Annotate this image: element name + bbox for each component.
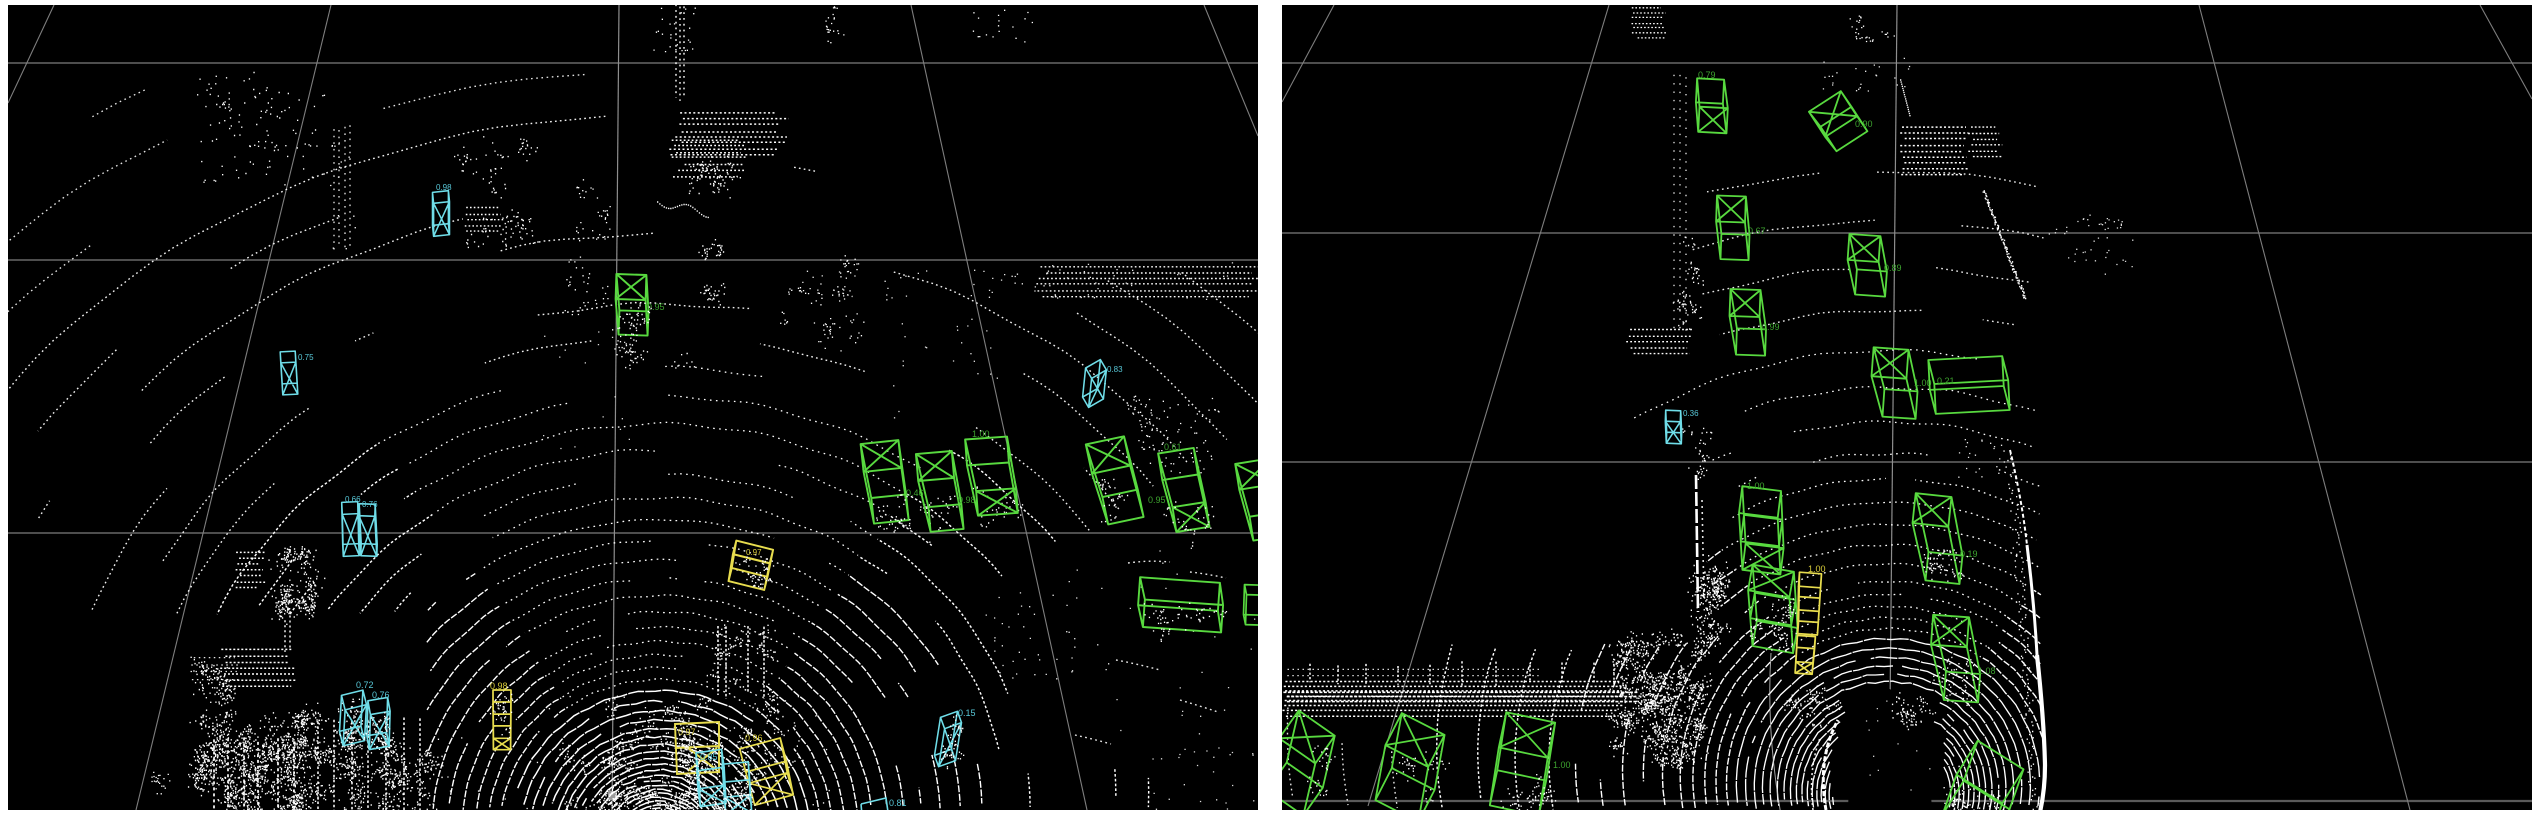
svg-text:1.00: 1.00 bbox=[1747, 481, 1765, 491]
svg-text:0.75: 0.75 bbox=[298, 353, 314, 362]
svg-text:0.79: 0.79 bbox=[1698, 70, 1716, 80]
svg-text:1.00: 1.00 bbox=[972, 429, 990, 439]
svg-text:0.89: 0.89 bbox=[1884, 263, 1902, 273]
svg-text:0.72: 0.72 bbox=[356, 680, 374, 690]
svg-text:0.90: 0.90 bbox=[1855, 119, 1873, 129]
svg-text:0.19: 0.19 bbox=[1960, 549, 1978, 559]
svg-text:0.83: 0.83 bbox=[1107, 365, 1123, 374]
svg-text:0.81: 0.81 bbox=[889, 798, 907, 808]
svg-text:0.99: 0.99 bbox=[1762, 322, 1780, 332]
svg-text:0.85: 0.85 bbox=[700, 752, 718, 762]
svg-text:0.21: 0.21 bbox=[1937, 376, 1955, 386]
svg-text:0.67: 0.67 bbox=[1748, 226, 1766, 236]
svg-text:0.66: 0.66 bbox=[345, 495, 361, 504]
svg-text:0.98: 0.98 bbox=[436, 183, 452, 192]
svg-text:0.98: 0.98 bbox=[490, 681, 508, 691]
svg-text:0.61: 0.61 bbox=[1164, 442, 1182, 452]
svg-text:0.36: 0.36 bbox=[1683, 409, 1699, 418]
svg-text:1.08: 1.08 bbox=[1978, 666, 1996, 676]
svg-text:0.95: 0.95 bbox=[1148, 495, 1166, 505]
svg-text:0.97: 0.97 bbox=[746, 548, 762, 557]
svg-text:0.96: 0.96 bbox=[745, 733, 763, 743]
svg-text:0.97: 0.97 bbox=[678, 727, 696, 737]
svg-text:1.00: 1.00 bbox=[1808, 564, 1826, 574]
svg-text:0.76: 0.76 bbox=[372, 690, 390, 700]
svg-text:0.76: 0.76 bbox=[362, 500, 378, 509]
svg-text:1.00: 1.00 bbox=[1553, 760, 1571, 770]
svg-text:0.15: 0.15 bbox=[958, 708, 976, 718]
